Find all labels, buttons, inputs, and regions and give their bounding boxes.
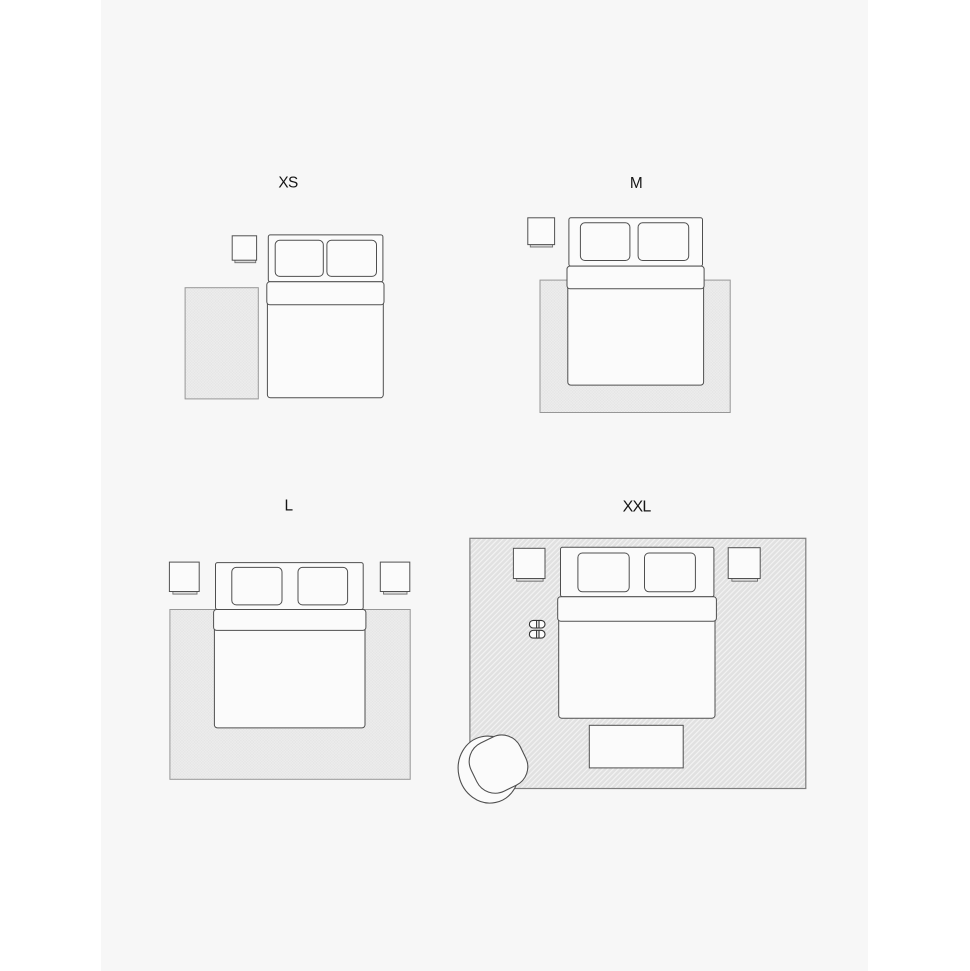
svg-text:L: L bbox=[285, 498, 294, 515]
svg-text:XS: XS bbox=[278, 174, 298, 191]
svg-text:XXL: XXL bbox=[623, 498, 652, 515]
svg-text:M: M bbox=[630, 175, 642, 192]
